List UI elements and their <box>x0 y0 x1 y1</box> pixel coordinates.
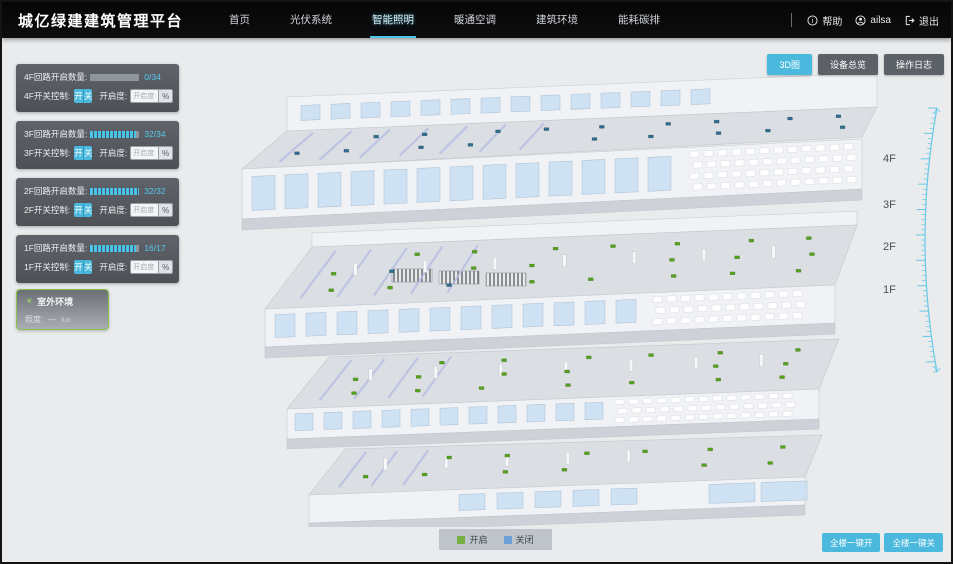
app-title: 城亿绿建建筑管理平台 <box>2 10 183 31</box>
floor-panel-3f: 3F回路开启数量: 32/34 3F开关控制: 开 关 开启度: % <box>16 121 179 169</box>
switch-off-button[interactable]: 关 <box>84 203 93 217</box>
floor-1f-model <box>309 435 822 527</box>
percent-button[interactable]: % <box>159 146 173 160</box>
nav-item-hvac[interactable]: 暖通空调 <box>452 2 498 38</box>
legend-on-label: 开启 <box>469 533 487 546</box>
legend-on-swatch <box>457 536 465 544</box>
nav-item-building-env[interactable]: 建筑环境 <box>534 2 580 38</box>
illuminance-unit: lux <box>61 315 71 324</box>
nav-item-pv-system[interactable]: 光伏系统 <box>288 2 334 38</box>
circuit-count-label: 4F回路开启数量: <box>24 71 87 83</box>
illuminance-label: 照度: <box>25 314 43 325</box>
dim-input[interactable] <box>130 260 159 274</box>
circuit-progress-bar <box>90 74 139 81</box>
dim-label: 开启度: <box>99 204 127 216</box>
nav-divider <box>791 13 792 27</box>
switch-off-button[interactable]: 关 <box>84 260 93 274</box>
all-off-button[interactable]: 全楼一键关 <box>884 533 943 552</box>
bulk-controls: 全楼一键开 全楼一键关 <box>822 533 943 552</box>
switch-on-button[interactable]: 开 <box>74 146 84 160</box>
dim-label: 开启度: <box>99 90 127 102</box>
percent-button[interactable]: % <box>159 89 173 103</box>
switch-control-label: 4F开关控制: <box>24 90 70 102</box>
view-3d-button[interactable]: 3D图 <box>767 54 812 75</box>
circuit-count-label: 2F回路开启数量: <box>24 185 87 197</box>
logout-link[interactable]: 退出 <box>904 13 939 28</box>
progress-fill <box>90 245 136 252</box>
main-menu: 首页 光伏系统 智能照明 暖通空调 建筑环境 能耗碳排 <box>227 2 662 38</box>
circuit-progress-bar <box>90 188 139 195</box>
circuit-progress-bar <box>90 245 139 252</box>
device-overview-button[interactable]: 设备总览 <box>818 54 878 75</box>
illuminance-value: — <box>48 315 56 324</box>
legend-off-swatch <box>504 536 512 544</box>
view-toolbar: 3D图 设备总览 操作日志 <box>767 54 944 75</box>
circuit-progress-bar <box>90 131 139 138</box>
floor-3f-model <box>265 211 857 358</box>
circuit-count-value: 32/34 <box>144 129 165 139</box>
sun-icon: ☀ <box>25 297 33 306</box>
circuit-count-label: 1F回路开启数量: <box>24 242 87 254</box>
circuit-count-label: 3F回路开启数量: <box>24 128 87 140</box>
louver-unit <box>486 273 526 286</box>
nav-item-smart-lighting[interactable]: 智能照明 <box>370 2 416 38</box>
top-nav: 城亿绿建建筑管理平台 首页 光伏系统 智能照明 暖通空调 建筑环境 能耗碳排 i… <box>2 2 951 38</box>
dim-input[interactable] <box>130 89 159 103</box>
light-status-legend: 开启 关闭 <box>439 529 552 550</box>
switch-off-button[interactable]: 关 <box>84 89 93 103</box>
nav-item-energy-carbon[interactable]: 能耗碳排 <box>616 2 662 38</box>
switch-control-label: 1F开关控制: <box>24 261 70 273</box>
floor-label-2f: 2F <box>883 241 896 253</box>
floor-panel-1f: 1F回路开启数量: 16/17 1F开关控制: 开 关 开启度: % <box>16 235 179 283</box>
circuit-count-value: 32/32 <box>144 186 165 196</box>
app-window: 城亿绿建建筑管理平台 首页 光伏系统 智能照明 暖通空调 建筑环境 能耗碳排 i… <box>0 0 953 564</box>
outdoor-title: 室外环境 <box>37 295 73 308</box>
floor-label-4f: 4F <box>883 153 896 165</box>
switch-on-button[interactable]: 开 <box>74 260 84 274</box>
progress-fill <box>90 188 139 195</box>
percent-button[interactable]: % <box>159 260 173 274</box>
floor-panel-4f: 4F回路开启数量: 0/34 4F开关控制: 开 关 开启度: % <box>16 64 179 112</box>
floor-4f-model <box>242 73 877 230</box>
floor-2f-model <box>287 339 839 449</box>
nav-item-home[interactable]: 首页 <box>227 2 252 38</box>
floor-panel-2f: 2F回路开启数量: 32/32 2F开关控制: 开 关 开启度: % <box>16 178 179 226</box>
user-icon <box>855 15 866 26</box>
logout-icon <box>904 15 915 26</box>
zoom-ruler-slider[interactable] <box>905 104 949 376</box>
switch-control-label: 2F开关控制: <box>24 204 70 216</box>
user-account[interactable]: ailsa <box>855 15 891 26</box>
percent-button[interactable]: % <box>159 203 173 217</box>
help-icon: i <box>807 15 818 26</box>
switch-control-label: 3F开关控制: <box>24 147 70 159</box>
outdoor-env-panel: ☀ 室外环境 照度: — lux <box>16 289 109 330</box>
circuit-count-value: 0/34 <box>144 72 161 82</box>
dim-label: 开启度: <box>99 147 127 159</box>
switch-on-button[interactable]: 开 <box>74 203 84 217</box>
building-3d-model <box>217 57 897 527</box>
dim-input[interactable] <box>130 203 159 217</box>
switch-off-button[interactable]: 关 <box>84 146 93 160</box>
nav-right: i 帮助 ailsa 退出 <box>791 13 951 28</box>
floor-label-1f: 1F <box>883 284 896 296</box>
floor-label-3f: 3F <box>883 199 896 211</box>
all-on-button[interactable]: 全楼一键开 <box>822 533 881 552</box>
svg-text:i: i <box>812 17 814 24</box>
dim-input[interactable] <box>130 146 159 160</box>
operation-log-button[interactable]: 操作日志 <box>884 54 944 75</box>
circuit-count-value: 16/17 <box>144 243 165 253</box>
dim-label: 开启度: <box>99 261 127 273</box>
switch-on-button[interactable]: 开 <box>74 89 84 103</box>
help-link[interactable]: i 帮助 <box>807 13 842 28</box>
legend-off-label: 关闭 <box>516 533 534 546</box>
progress-fill <box>90 131 136 138</box>
